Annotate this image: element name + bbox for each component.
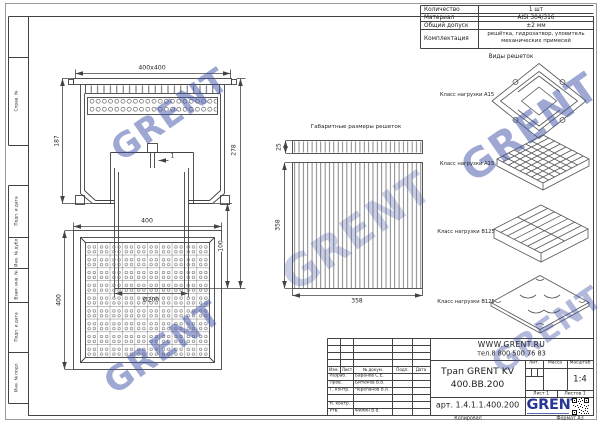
center-view-title: Габаритные размеры решеток [311, 123, 401, 129]
spec-label-material: Материал [424, 14, 454, 20]
drawing-sheet: GRENT GRENT GRENT GRENT GRENT Справ. № П… [0, 0, 600, 424]
role-tcontrol: Т. контр. [330, 389, 350, 394]
spec-label-tolerance: Общий допуск [424, 22, 468, 28]
views-panel-title: Виды решеток [489, 53, 534, 59]
dim-outlet-length: 100 [219, 240, 226, 251]
qr-code [572, 398, 589, 415]
mass-label: Масса [548, 362, 562, 367]
frame-label-podp-data-2: Подп. и дата [16, 312, 21, 341]
sheets-total: Листов 1 [564, 391, 586, 396]
frame-label-sprav: Справ. № [16, 91, 21, 112]
sheet-number: Лист 1 [533, 391, 549, 396]
drawing-linework [0, 0, 600, 424]
name-developer: Баранов С.Е. [355, 375, 384, 380]
spec-label-quantity: Количество [424, 6, 460, 12]
col-data: Дата [416, 368, 427, 373]
load-class-label-4: Класс нагрузки B125 [437, 300, 495, 306]
role-approved: Утв. [330, 409, 339, 414]
col-izm: Изм. [329, 368, 339, 373]
frame-label-vzam-inv: Взам. инв. № [16, 270, 21, 299]
dim-plan-width: 400 [141, 218, 153, 225]
name-approved: Филин В.В. [355, 409, 380, 414]
dim-overall: 400x400 [138, 66, 165, 73]
col-list: Лист [342, 368, 352, 373]
col-podp: Подп. [396, 368, 408, 373]
role-checker: Пров. [330, 382, 343, 387]
scale-label: Масштаб [570, 362, 591, 367]
copied-label: Копировал [454, 416, 481, 421]
dim-total-height: 278 [232, 144, 239, 155]
name-checker: Битюков В.В. [355, 382, 385, 387]
spec-label-kit: Комплектация [424, 35, 469, 41]
product-title-line1: Трап GRENT KV [441, 367, 514, 377]
frame-label-podp-data-1: Подп. и дата [16, 196, 21, 225]
dim-grate-length: 358 [351, 298, 362, 305]
dim-grate-width: 358 [276, 219, 283, 230]
dim-diameter: Ø200 [143, 298, 159, 305]
role-developer: Разраб. [330, 375, 347, 380]
format-label: Формат А3 [556, 416, 583, 421]
frame-label-inv-podl: Инв. № подл. [16, 362, 21, 392]
spec-value-tolerance: ±2 мм [526, 22, 545, 28]
frame-label-inv-dubl: Инв. № дубл. [16, 237, 21, 266]
company-website: WWW.GRENT.RU [478, 340, 546, 348]
company-phone: тел.8 800 500 76 83 [477, 350, 546, 357]
scale-value: 1:4 [573, 375, 587, 384]
load-class-label-3: Класс нагрузки B125 [437, 230, 495, 236]
logo-tagline-bar [527, 413, 569, 414]
spec-value-quantity: 1 шт [529, 6, 543, 12]
article-number: арт. 1.4.1.1.400.200 [436, 402, 519, 411]
role-ncontrol: Н. контр. [330, 402, 351, 407]
load-class-label-2: Класс нагрузки А15 [440, 162, 494, 168]
spec-value-kit-line2: механических примесей [501, 39, 571, 45]
name-tcontrol: Черепанов В.А. [355, 389, 389, 394]
spec-value-material: AISI 304/316 [518, 14, 555, 20]
col-doc: № докум. [363, 368, 383, 373]
product-title-line2: 400.BB.200 [451, 380, 505, 390]
dim-grate-thickness: 25 [277, 143, 284, 151]
dim-body-height: 187 [55, 135, 62, 146]
load-class-label-1: Класс нагрузки А15 [440, 93, 494, 99]
dim-plan-height: 400 [57, 294, 64, 306]
dim-wall-thickness: 1 [171, 154, 175, 161]
lit-label: Лит. [529, 362, 539, 367]
